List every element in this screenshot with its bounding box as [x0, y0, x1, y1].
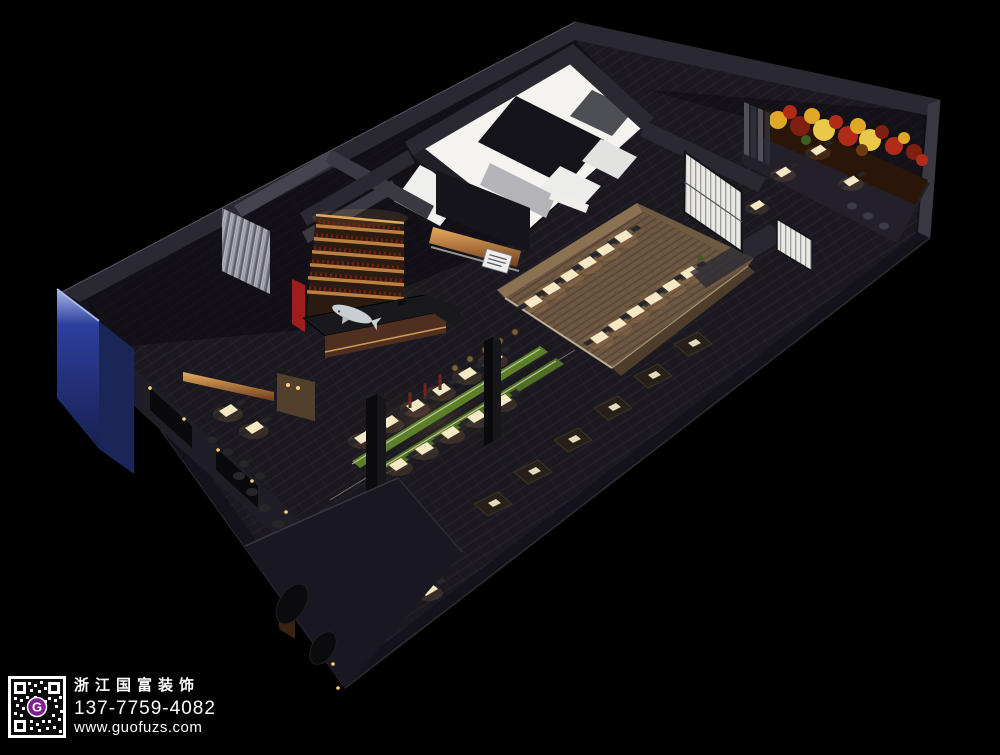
phone-number: 137-7759-4082: [74, 699, 216, 719]
qr-logo-letter: G: [32, 700, 42, 715]
plant: [697, 255, 703, 261]
render-image: [0, 0, 1000, 750]
restaurant-render: [0, 0, 1000, 750]
watermark: G 浙江国富装饰 137-7759-4082 www.guofuzs.com: [8, 676, 216, 738]
qr-code: G: [8, 676, 66, 738]
red-accent-wall: [292, 279, 305, 332]
website-url: www.guofuzs.com: [74, 720, 216, 737]
company-name: 浙江国富装饰: [74, 678, 216, 695]
